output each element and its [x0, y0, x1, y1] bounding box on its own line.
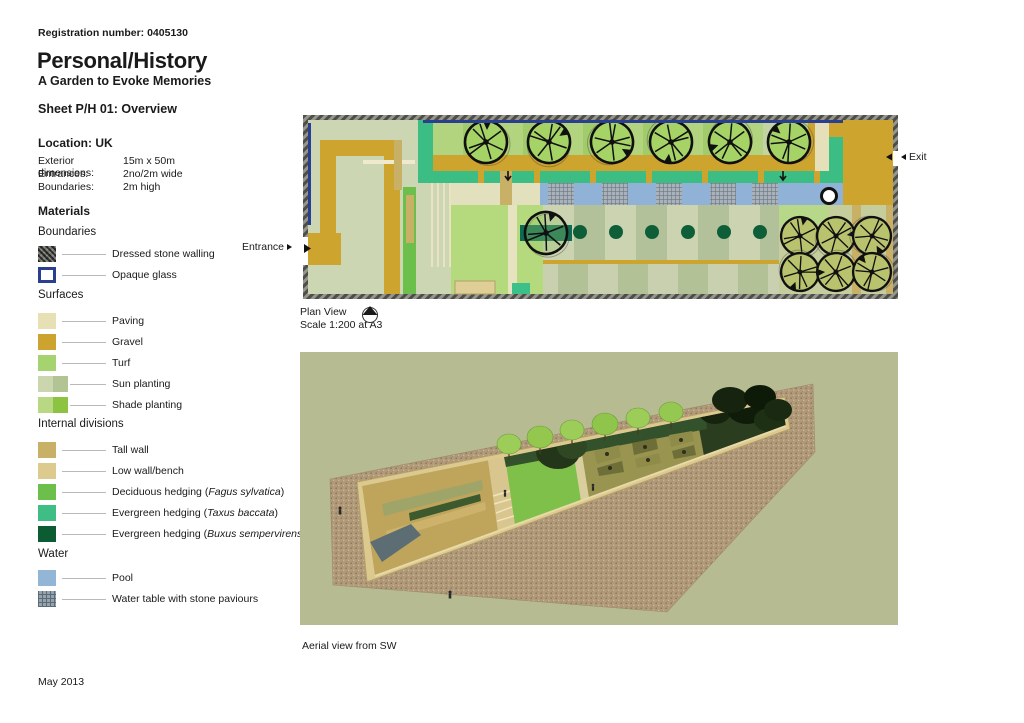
legend-connector — [62, 599, 106, 600]
legend-label: Deciduous hedging (Fagus sylvatica) — [112, 486, 284, 498]
turf-swatch — [38, 355, 56, 371]
legend-label: Dressed stone walling — [112, 248, 215, 260]
entrance-arrow-icon — [287, 244, 292, 250]
exit-label: Exit — [901, 151, 927, 163]
legend-label: Turf — [112, 357, 130, 369]
section-heading-boundaries: Boundaries — [38, 226, 96, 238]
legend-label: Pool — [112, 572, 133, 584]
water-table-swatch — [38, 591, 56, 607]
entrance-label: Entrance — [236, 241, 292, 253]
plan-view-svg — [303, 115, 898, 299]
legend-connector — [62, 578, 106, 579]
exit-arrow-icon — [901, 154, 906, 160]
legend-label: Evergreen hedging (Buxus sempervirens) — [112, 528, 306, 540]
legend-label: Water table with stone paviours — [112, 593, 258, 605]
page-title: Personal/History — [37, 48, 207, 74]
paving-swatch — [38, 313, 56, 329]
shade-planting-swatch — [38, 397, 68, 413]
design-sheet-page: Registration number: 0405130 Personal/Hi… — [0, 0, 1024, 723]
legend-label: Evergreen hedging (Taxus baccata) — [112, 507, 278, 519]
gravel-swatch — [38, 334, 56, 350]
registration-number: Registration number: 0405130 — [38, 27, 188, 39]
spec-value: 2no/2m wide — [123, 168, 183, 180]
page-subtitle: A Garden to Evoke Memories — [38, 74, 211, 88]
spec-label: Boundaries: — [38, 181, 123, 193]
spec-value: 15m x 50m — [123, 155, 175, 167]
tall-wall-swatch — [38, 442, 56, 458]
sheet-label: Sheet P/H 01: Overview — [38, 102, 177, 116]
pool-swatch — [38, 570, 56, 586]
location-label: Location: UK — [38, 136, 113, 150]
spec-value: 2m high — [123, 181, 160, 193]
legend-connector — [70, 384, 106, 385]
section-heading-internal-divisions: Internal divisions — [38, 418, 124, 430]
legend-label: Paving — [112, 315, 144, 327]
dressed-stone-swatch — [38, 246, 56, 262]
legend-connector — [62, 534, 106, 535]
legend-connector — [62, 342, 106, 343]
deciduous-hedge-swatch — [38, 484, 56, 500]
north-arrow-icon — [361, 305, 379, 323]
taxus-hedge-swatch — [38, 505, 56, 521]
sun-planting-swatch — [38, 376, 68, 392]
low-wall-swatch — [38, 463, 56, 479]
legend-label: Opaque glass — [112, 269, 177, 281]
section-heading-water: Water — [38, 548, 68, 560]
legend-connector — [62, 321, 106, 322]
sheet-date: May 2013 — [38, 676, 84, 688]
spec-label: Entrances: — [38, 168, 123, 180]
legend-connector — [62, 450, 106, 451]
opaque-glass-swatch — [38, 267, 56, 283]
materials-title: Materials — [38, 204, 90, 218]
section-heading-surfaces: Surfaces — [38, 289, 83, 301]
buxus-hedge-swatch — [38, 526, 56, 542]
legend-label: Shade planting — [112, 399, 182, 411]
legend-connector — [62, 275, 106, 276]
legend-label: Low wall/bench — [112, 465, 184, 477]
aerial-caption: Aerial view from SW — [302, 640, 397, 653]
aerial-view-drawing — [300, 352, 898, 625]
legend-label: Sun planting — [112, 378, 170, 390]
legend-connector — [62, 254, 106, 255]
plan-view-drawing — [303, 115, 898, 299]
legend-connector — [62, 513, 106, 514]
legend-connector — [62, 492, 106, 493]
aerial-view-svg — [300, 352, 898, 625]
legend-connector — [62, 363, 106, 364]
legend-label: Tall wall — [112, 444, 149, 456]
legend-connector — [62, 471, 106, 472]
legend-label: Gravel — [112, 336, 143, 348]
legend-connector — [70, 405, 106, 406]
